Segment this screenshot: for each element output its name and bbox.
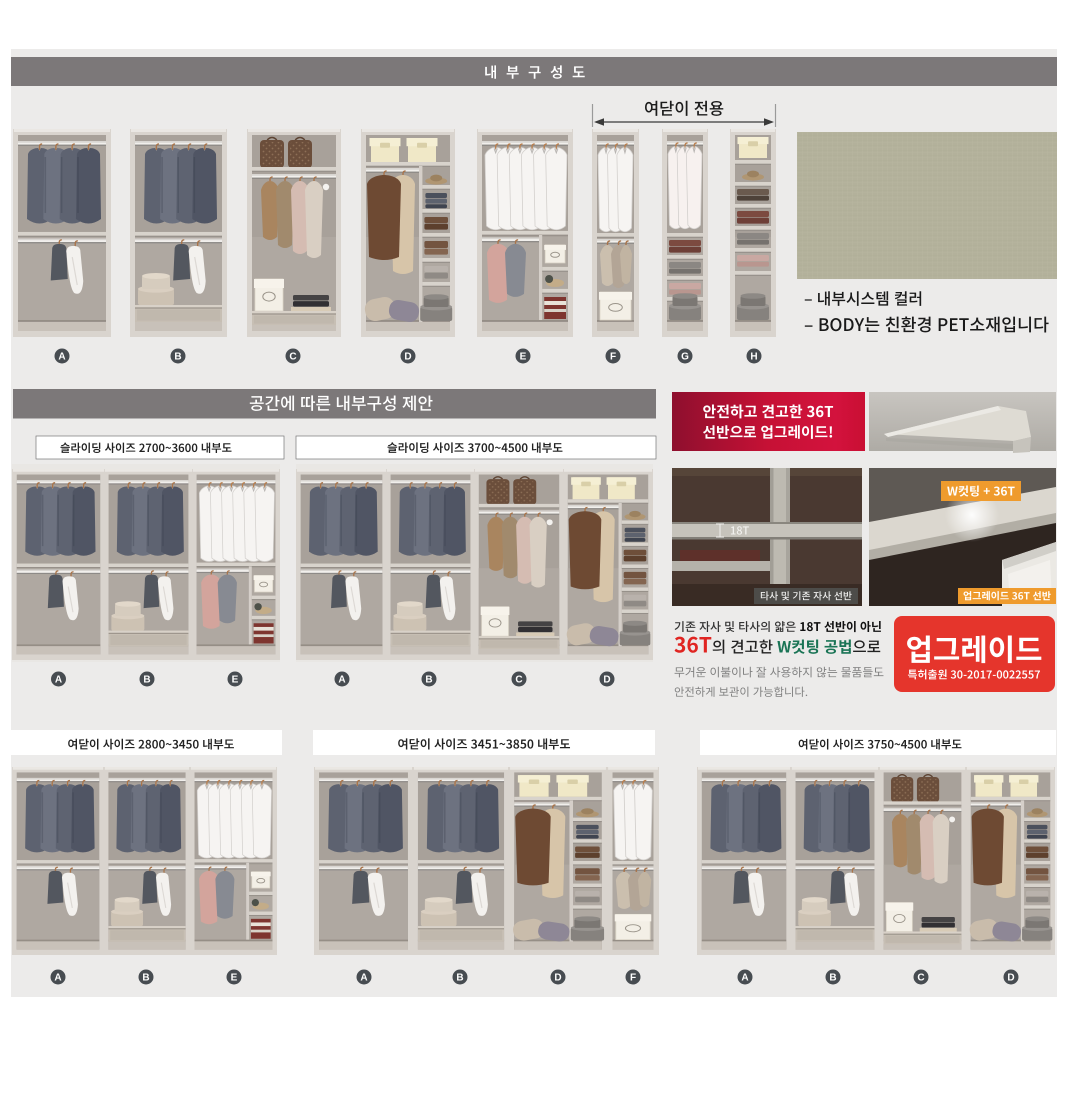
svg-text:B: B [174,352,181,363]
svg-text:C: C [515,675,522,686]
svg-text:C: C [917,973,924,984]
svg-text:D: D [554,973,561,984]
svg-text:A: A [338,675,345,686]
svg-text:B: B [142,973,149,984]
svg-text:C: C [289,352,296,363]
svg-text:E: E [232,675,239,686]
svg-text:A: A [360,973,367,984]
svg-text:A: A [741,973,748,984]
svg-text:H: H [750,352,757,363]
svg-text:A: A [54,973,61,984]
svg-text:E: E [520,352,527,363]
svg-text:D: D [603,675,610,686]
svg-text:B: B [456,973,463,984]
svg-text:G: G [681,352,689,363]
svg-text:E: E [231,973,238,984]
svg-text:F: F [610,352,616,363]
svg-text:F: F [630,973,636,984]
svg-text:D: D [404,352,411,363]
svg-text:A: A [58,352,65,363]
svg-text:D: D [1007,973,1014,984]
svg-text:B: B [829,973,836,984]
svg-text:B: B [143,675,150,686]
svg-text:A: A [55,675,62,686]
svg-text:B: B [425,675,432,686]
